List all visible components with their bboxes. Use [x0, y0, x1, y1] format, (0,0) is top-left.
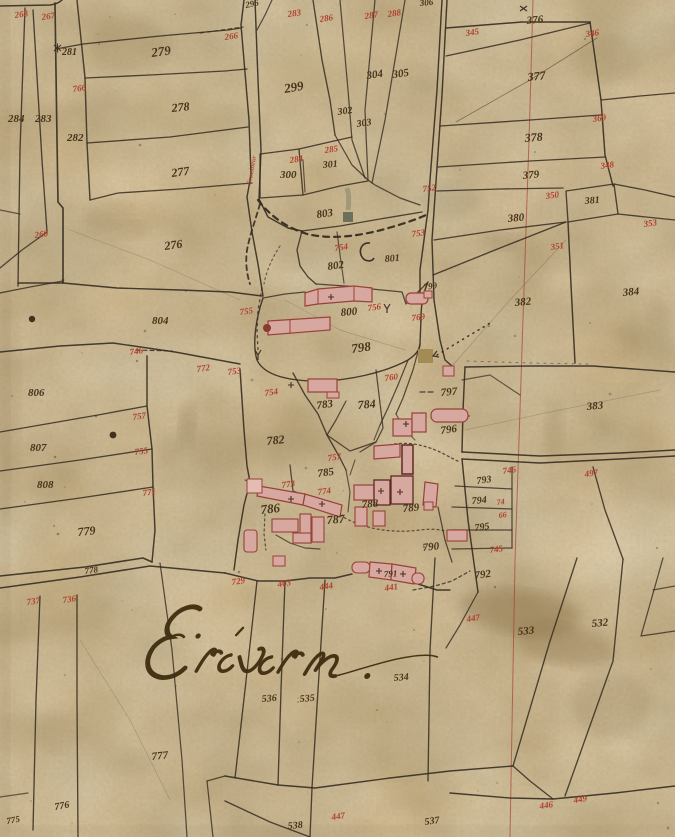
svg-text:808: 808 — [37, 479, 54, 491]
svg-text:794: 794 — [471, 495, 487, 507]
svg-text:449: 449 — [572, 793, 588, 805]
svg-text:798: 798 — [350, 338, 372, 356]
svg-text:799: 799 — [423, 280, 438, 292]
svg-text:785: 785 — [317, 466, 336, 480]
svg-text:791: 791 — [384, 568, 398, 579]
svg-text:380: 380 — [506, 212, 525, 226]
svg-text:784: 784 — [357, 396, 376, 412]
svg-text:266: 266 — [223, 30, 239, 42]
svg-text:353: 353 — [642, 217, 658, 229]
svg-text:532: 532 — [591, 617, 609, 630]
svg-text:755: 755 — [134, 445, 149, 457]
svg-text:535: 535 — [299, 693, 315, 705]
svg-text:447: 447 — [330, 810, 346, 822]
svg-text:801: 801 — [384, 253, 400, 265]
svg-text:376: 376 — [525, 14, 544, 28]
svg-text:790: 790 — [422, 540, 440, 554]
svg-text:783: 783 — [316, 398, 335, 412]
svg-text:301: 301 — [321, 159, 338, 171]
svg-text:382: 382 — [513, 296, 532, 310]
svg-text:278: 278 — [170, 99, 190, 115]
svg-text:446: 446 — [538, 799, 554, 811]
svg-text:384: 384 — [621, 286, 640, 300]
svg-text:754: 754 — [264, 386, 279, 398]
svg-text:772: 772 — [196, 362, 211, 374]
svg-text:369: 369 — [591, 112, 607, 124]
svg-text:789: 789 — [402, 502, 420, 515]
svg-text:268: 268 — [13, 8, 29, 20]
svg-text:757: 757 — [132, 410, 147, 422]
svg-text:283: 283 — [286, 7, 302, 19]
svg-text:306: 306 — [418, 0, 434, 8]
svg-text:756: 756 — [367, 301, 382, 313]
svg-text:287: 287 — [363, 9, 379, 21]
svg-text:774: 774 — [317, 485, 332, 497]
svg-text:746: 746 — [502, 464, 517, 476]
svg-text:305: 305 — [391, 67, 410, 81]
svg-text:284: 284 — [7, 113, 25, 125]
svg-text:348: 348 — [599, 159, 615, 171]
svg-text:800: 800 — [340, 306, 358, 319]
svg-text:260: 260 — [33, 228, 49, 240]
svg-text:66: 66 — [498, 510, 507, 520]
svg-text:381: 381 — [583, 195, 600, 207]
svg-text:282: 282 — [66, 132, 84, 144]
svg-text:802: 802 — [327, 259, 346, 273]
svg-text:302: 302 — [336, 105, 353, 118]
svg-text:346: 346 — [584, 27, 600, 39]
svg-text:795: 795 — [474, 521, 490, 534]
svg-text:771: 771 — [142, 486, 157, 498]
svg-text:534: 534 — [393, 672, 409, 684]
svg-text:755: 755 — [239, 305, 254, 317]
svg-text:378: 378 — [523, 129, 543, 145]
svg-text:533: 533 — [517, 625, 535, 638]
svg-text:778: 778 — [84, 564, 99, 576]
svg-text:303: 303 — [355, 117, 372, 130]
svg-text:757: 757 — [327, 451, 342, 463]
svg-text:779: 779 — [77, 523, 96, 539]
svg-text:736: 736 — [62, 593, 77, 605]
svg-text:787: 787 — [326, 511, 346, 527]
svg-text:752: 752 — [422, 182, 437, 194]
svg-text:283: 283 — [34, 113, 52, 125]
svg-text:792: 792 — [474, 568, 493, 582]
svg-text:288: 288 — [386, 7, 402, 19]
svg-text:769: 769 — [411, 311, 426, 323]
svg-text:377: 377 — [526, 68, 547, 84]
svg-text:444: 444 — [318, 580, 334, 592]
svg-text:537: 537 — [424, 815, 441, 828]
svg-text:746: 746 — [129, 345, 144, 357]
svg-text:796: 796 — [440, 423, 459, 437]
svg-text:754: 754 — [334, 241, 349, 253]
svg-text:793: 793 — [476, 474, 492, 487]
svg-text:300: 300 — [279, 169, 297, 181]
svg-text:383: 383 — [585, 400, 604, 414]
svg-text:737: 737 — [26, 595, 41, 607]
svg-text:284: 284 — [288, 153, 304, 165]
svg-text:403: 403 — [276, 577, 292, 589]
svg-text:788: 788 — [361, 498, 379, 511]
svg-text:279: 279 — [149, 42, 172, 60]
svg-text:267: 267 — [40, 10, 56, 22]
svg-text:281: 281 — [61, 47, 77, 58]
svg-text:773: 773 — [281, 478, 296, 490]
svg-text:729: 729 — [231, 575, 246, 587]
svg-text:538: 538 — [287, 820, 303, 832]
svg-text:803: 803 — [316, 207, 335, 221]
svg-text:285: 285 — [323, 143, 339, 155]
svg-text:497: 497 — [583, 467, 599, 479]
svg-text:753: 753 — [411, 227, 426, 239]
svg-text:786: 786 — [260, 500, 281, 517]
svg-text:441: 441 — [383, 581, 399, 593]
svg-text:350: 350 — [544, 189, 560, 201]
svg-text:807: 807 — [30, 442, 47, 454]
svg-text:286: 286 — [318, 12, 334, 24]
svg-text:276: 276 — [162, 237, 183, 254]
svg-text:74: 74 — [496, 497, 505, 507]
svg-text:753: 753 — [227, 365, 242, 377]
svg-text:777: 777 — [151, 749, 169, 763]
svg-text:536: 536 — [261, 693, 277, 705]
svg-text:351: 351 — [549, 240, 565, 252]
svg-text:304: 304 — [365, 68, 384, 82]
svg-text:806: 806 — [28, 387, 45, 399]
svg-text:797: 797 — [440, 386, 458, 399]
svg-text:782: 782 — [266, 432, 285, 448]
svg-text:345: 345 — [464, 26, 480, 38]
svg-text:277: 277 — [169, 163, 191, 180]
svg-text:760: 760 — [384, 371, 399, 383]
svg-text:766: 766 — [72, 82, 87, 94]
svg-text:745: 745 — [489, 543, 504, 555]
svg-text:804: 804 — [152, 315, 169, 327]
svg-text:447: 447 — [465, 612, 481, 624]
svg-text:379: 379 — [521, 169, 540, 183]
